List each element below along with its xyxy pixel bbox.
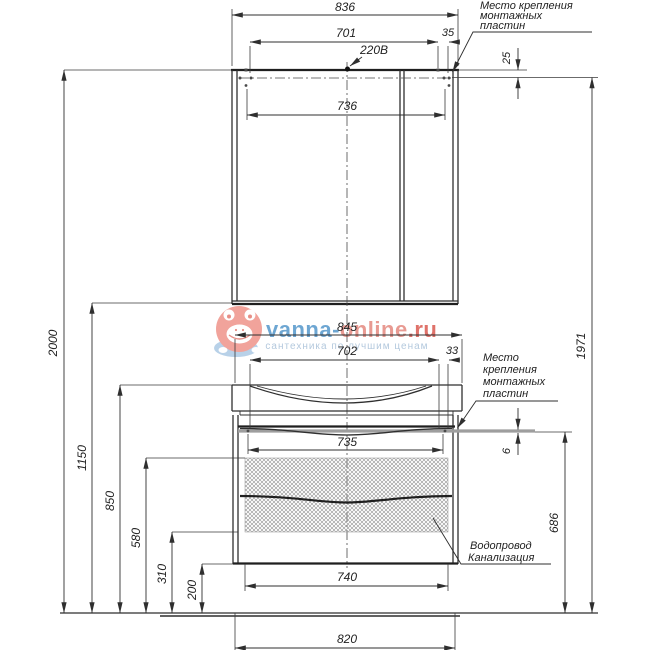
dim-310: 310 <box>155 564 169 584</box>
plumbing-line2: Канализация <box>468 552 534 564</box>
technical-drawing-page: vanna-online.ru сантехника по лучшим цен… <box>0 0 650 650</box>
plumbing-line1: Водопровод <box>470 540 532 552</box>
watermark-brand-red: .ru <box>408 317 438 342</box>
dim-740: 740 <box>337 570 357 584</box>
dim-686: 686 <box>547 513 561 533</box>
drawer-fronts-hatch <box>245 458 448 532</box>
mounting-plate-note-top: Место крепления монтажных пластин <box>453 0 593 72</box>
dim-735: 735 <box>337 435 357 449</box>
mount-mid-line2: крепления <box>483 364 537 376</box>
left-dimensions: 2000 1150 850 580 310 200 <box>46 70 245 613</box>
outlet-leader <box>350 57 362 66</box>
right-dimensions: 25 1971 6 686 <box>452 48 598 613</box>
dim-701: 701 <box>336 26 356 40</box>
basin-bowl-outer-curve <box>250 386 432 403</box>
vanity-installation-diagram: vanna-online.ru сантехника по лучшим цен… <box>0 0 650 650</box>
dim-820: 820 <box>337 632 357 646</box>
dim-35: 35 <box>442 27 455 39</box>
dim-200: 200 <box>185 580 199 601</box>
plumbing-note: Водопровод Канализация <box>433 518 551 564</box>
power-outlet-dot <box>345 67 350 72</box>
dim-845: 845 <box>337 320 357 334</box>
bottom-dimensions: 740 820 <box>235 564 455 650</box>
watermark: vanna-online.ru сантехника по лучшим цен… <box>214 306 437 357</box>
dim-33: 33 <box>446 345 459 357</box>
dim-850: 850 <box>103 491 117 511</box>
mount-top-line3: пластин <box>480 20 525 32</box>
watermark-brand-blue: vanna- <box>266 317 340 342</box>
basin-bowl-inner-curve <box>257 386 426 399</box>
mount-mid-line4: пластин <box>483 388 528 400</box>
mount-top-leader <box>453 32 593 72</box>
dim-6: 6 <box>501 447 513 454</box>
dim-702: 702 <box>337 344 357 358</box>
dim-736: 736 <box>337 99 357 113</box>
dim-2000: 2000 <box>46 329 60 357</box>
top-dimensions: 836 701 35 220В 736 <box>232 0 460 120</box>
mount-mid-line3: монтажных <box>483 376 546 388</box>
dim-1971: 1971 <box>574 333 588 360</box>
mount-mid-line1: Место <box>483 352 519 364</box>
frog-mascot-icon <box>214 306 262 357</box>
mount-mid-leader <box>458 401 559 428</box>
dim-25: 25 <box>501 51 513 65</box>
label-outlet-220v: 220В <box>359 43 388 57</box>
mounting-plate-note-middle: Место крепления монтажных пластин <box>458 352 559 428</box>
dim-580: 580 <box>129 528 143 548</box>
dim-836: 836 <box>335 0 355 14</box>
dim-1150: 1150 <box>75 445 89 471</box>
